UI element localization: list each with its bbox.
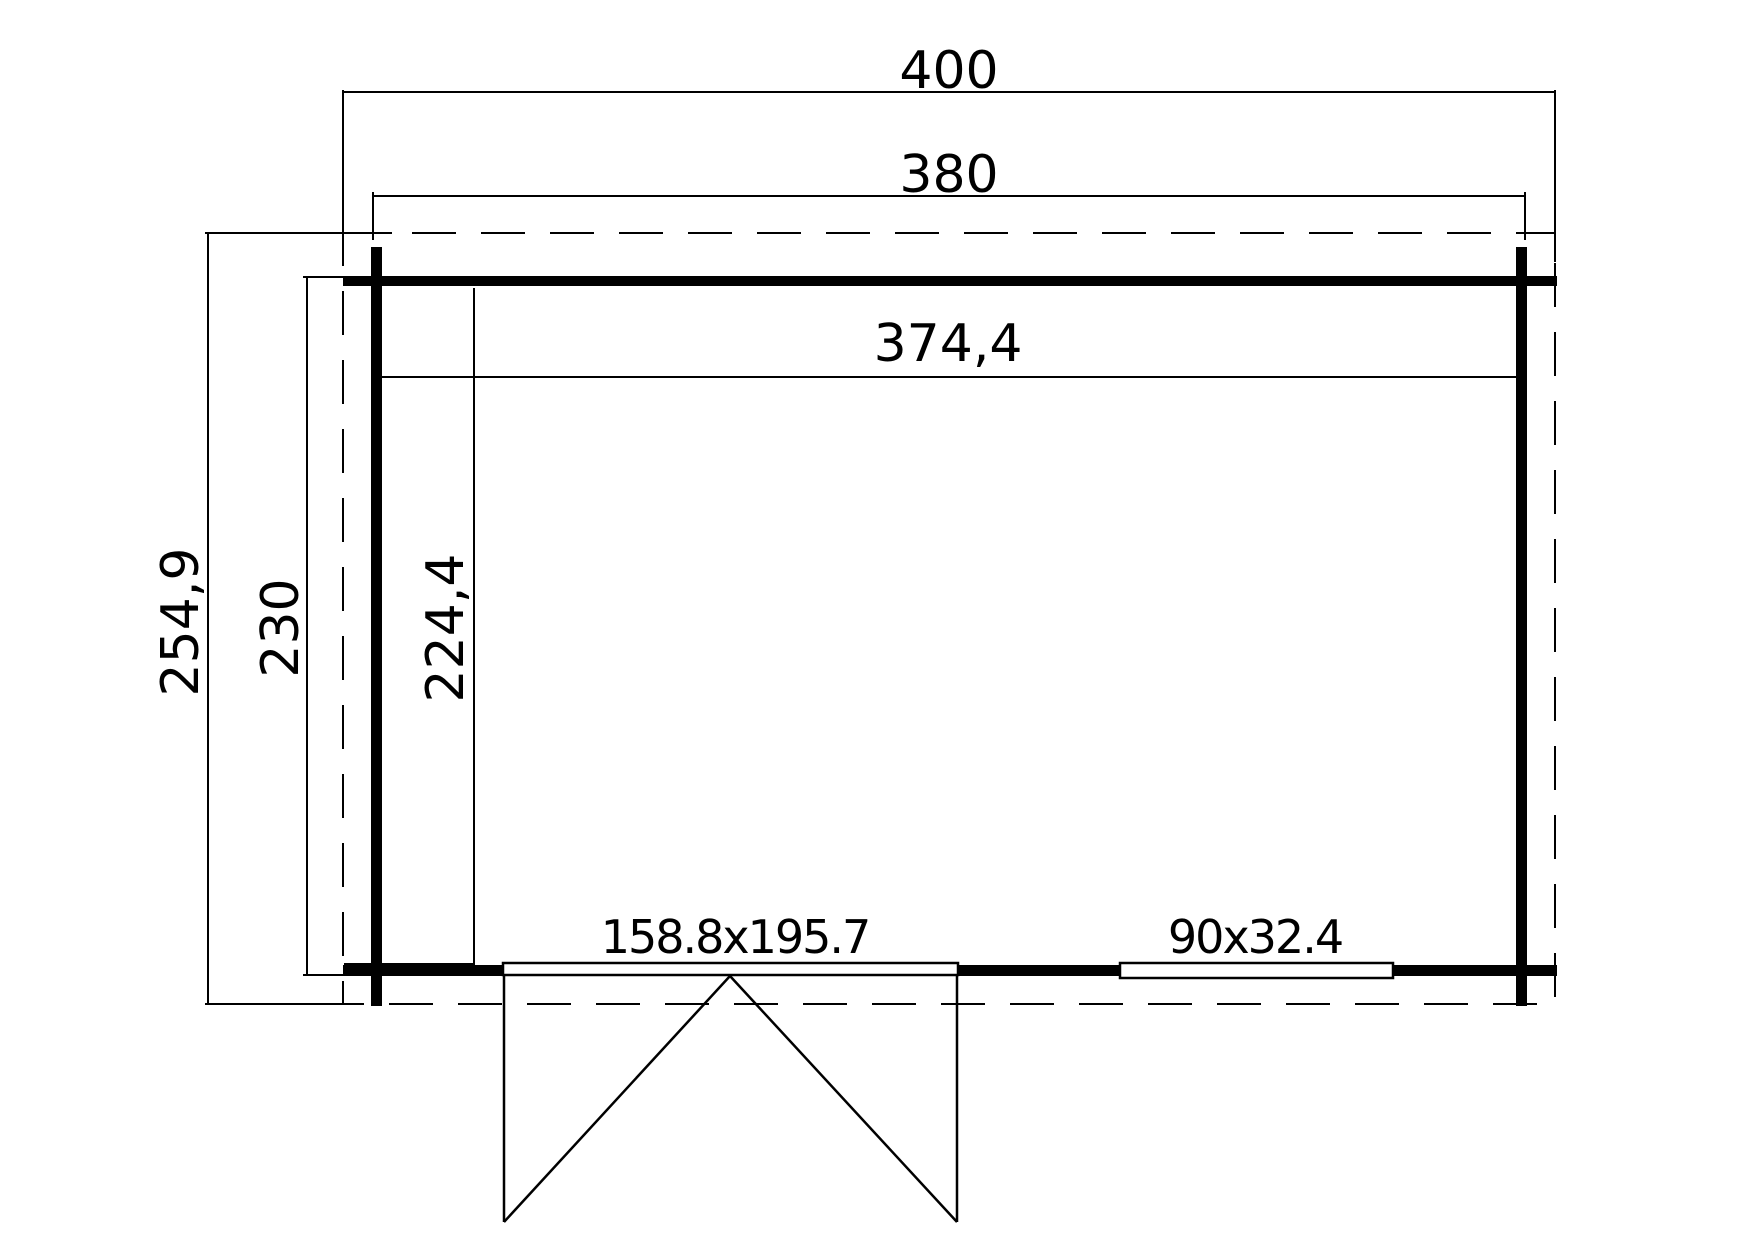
wall-bottom-middle-segment [958,965,1120,976]
dimension-base-depth: 230 [251,277,382,975]
dim-label-base-depth: 230 [251,578,311,677]
wall-right [1516,247,1527,1006]
dim-label-interior-width: 374,4 [874,314,1023,374]
dimension-interior-width: 374,4 [382,314,1516,377]
double-door: 158.8x195.7 [503,910,958,1222]
door-threshold [503,963,958,975]
wall-left [371,247,382,1006]
door-size-label: 158.8x195.7 [601,910,870,964]
door-swing-left [504,976,730,1222]
dim-label-roof-depth: 254,9 [151,548,211,697]
wall-bottom-right-segment [1393,965,1557,976]
dim-label-interior-depth: 224,4 [416,554,476,703]
window-frame [1120,963,1393,978]
wall-bottom-left-segment [343,965,503,976]
floor-plan: 400 380 374,4 254,9 230 [0,0,1754,1240]
window: 90x32.4 [1120,910,1393,978]
door-swing-right [730,976,957,1222]
window-size-label: 90x32.4 [1168,910,1342,964]
floor-plan-canvas: 400 380 374,4 254,9 230 [0,0,1754,1240]
dim-label-base-width: 380 [899,145,998,205]
wall-top [343,276,1557,286]
dim-label-roof-width: 400 [899,41,998,101]
dimension-base-width: 380 [373,145,1525,240]
dimension-interior-depth: 224,4 [344,288,476,965]
